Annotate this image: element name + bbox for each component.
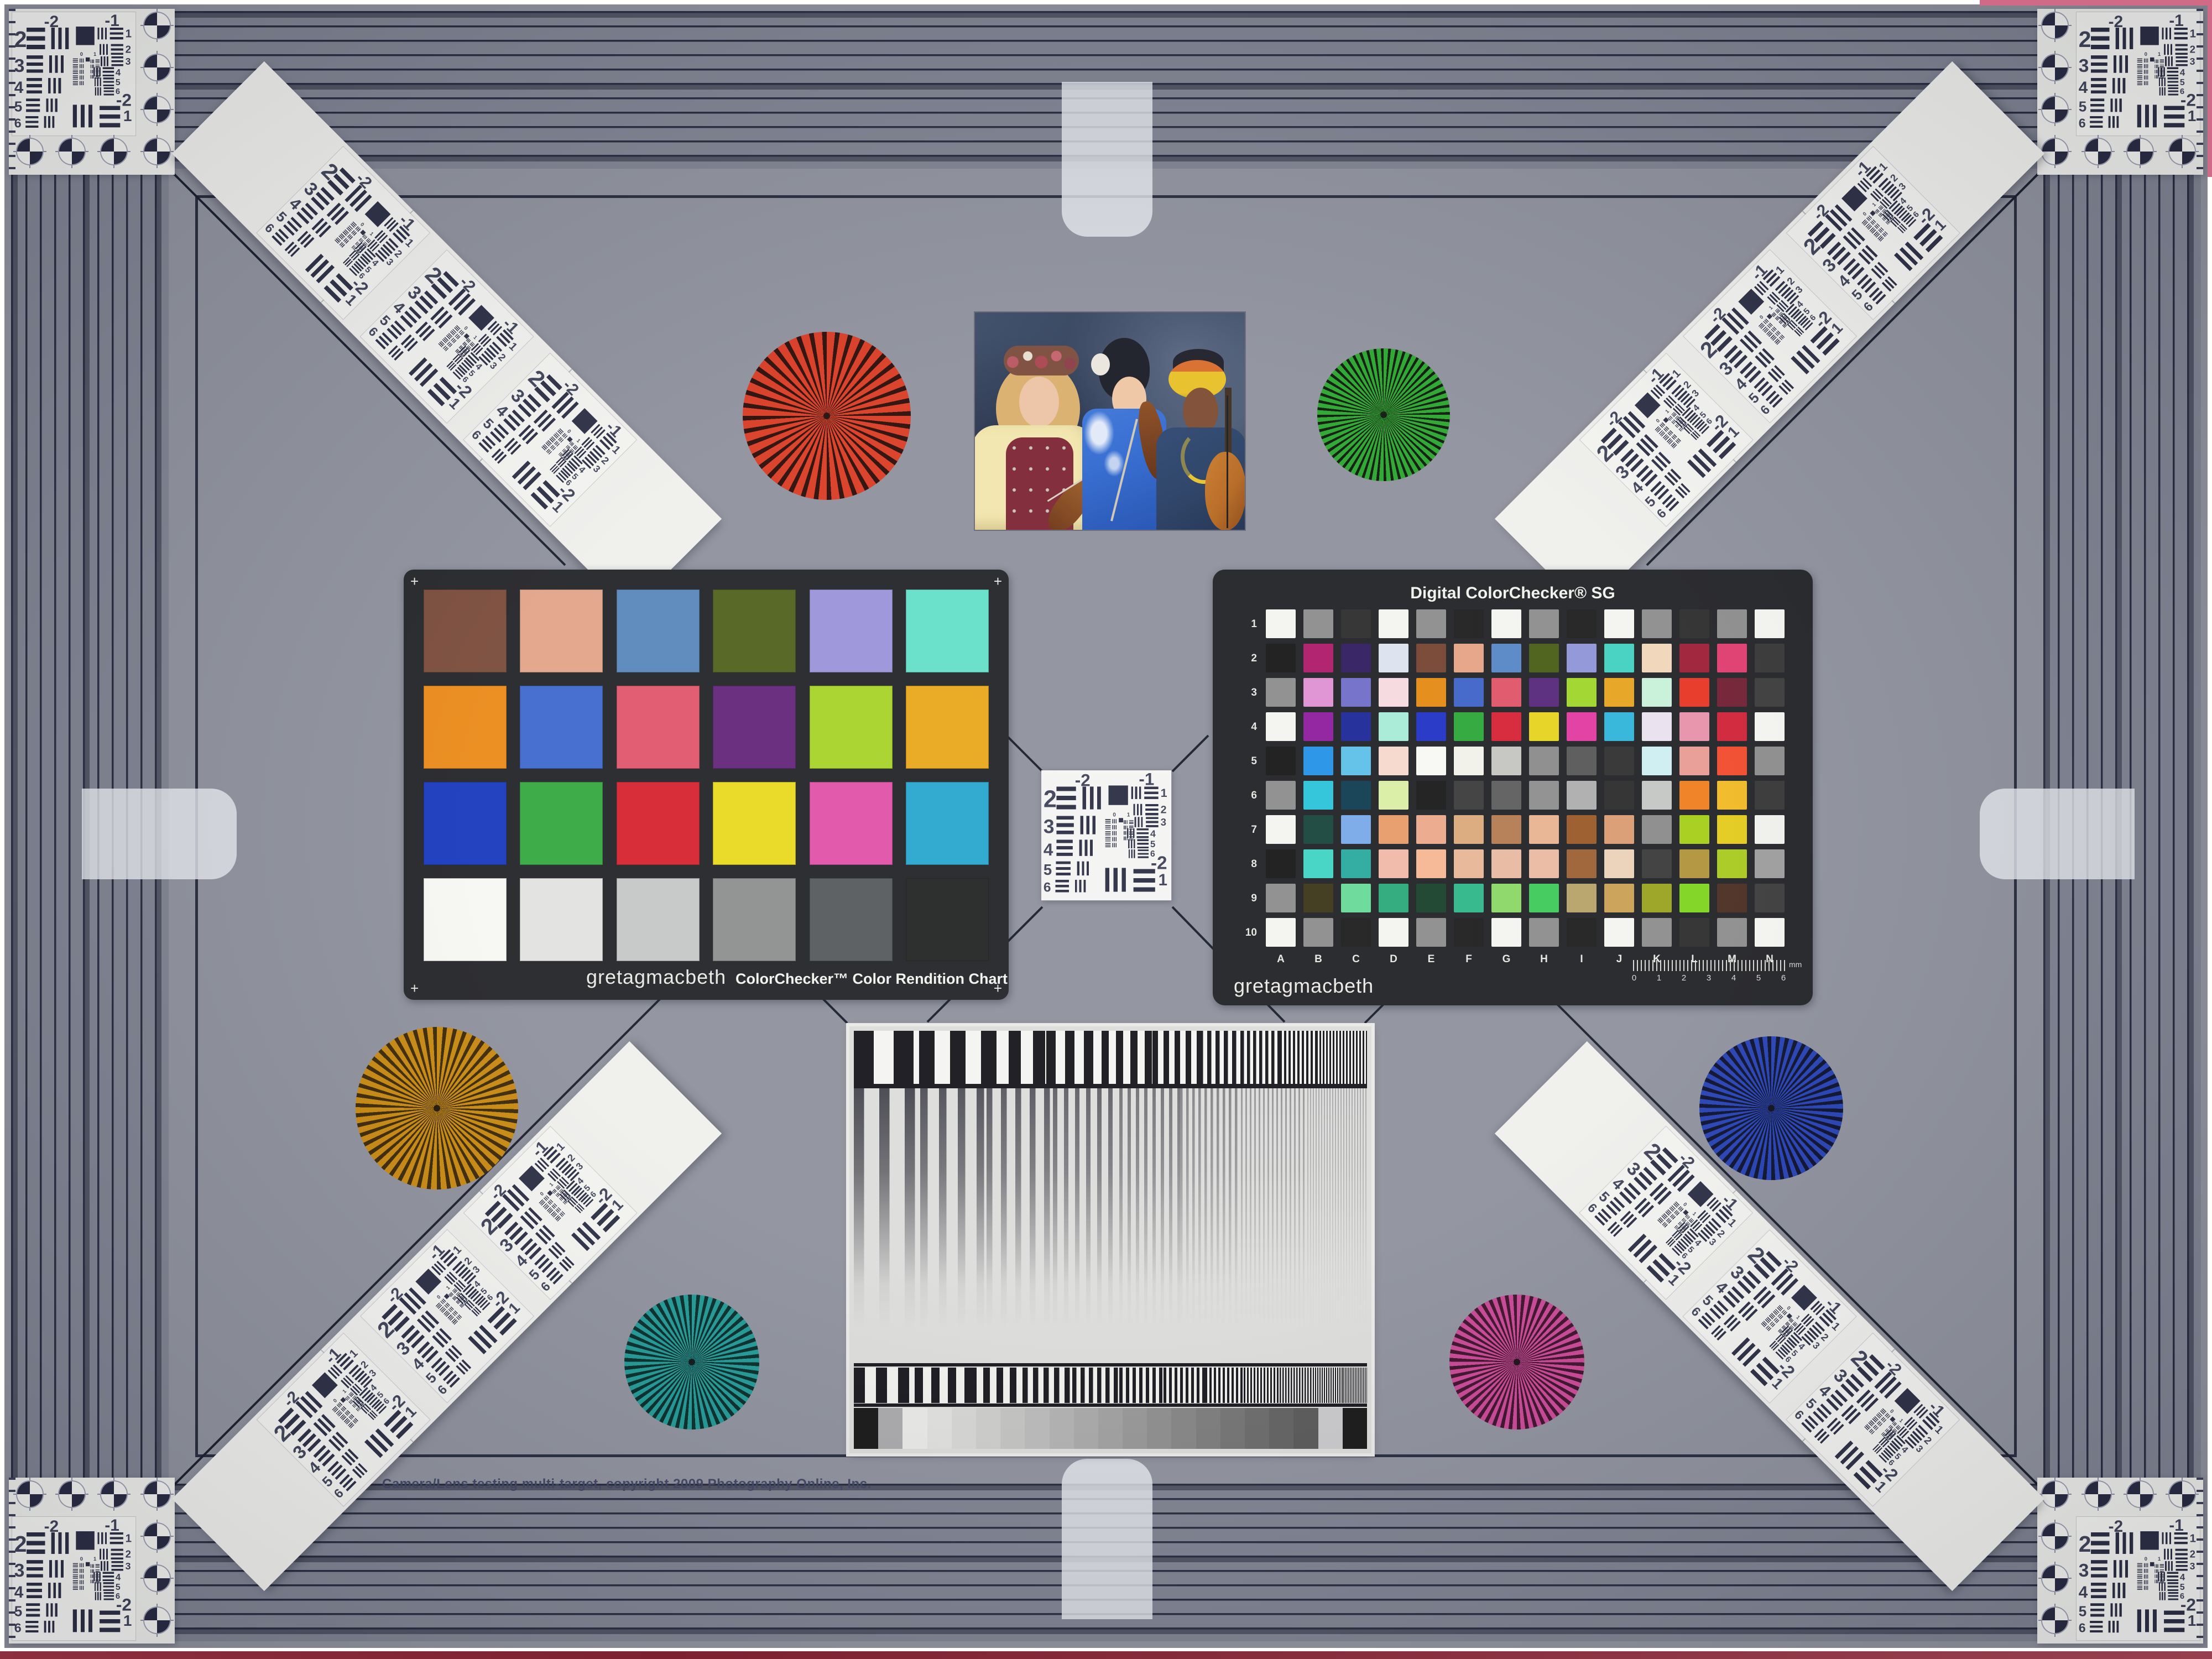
tribar-vertical bbox=[359, 238, 364, 243]
tribar-horizontal bbox=[348, 1391, 354, 1397]
sg-color-patch bbox=[1529, 884, 1559, 912]
usaf-label: 5 bbox=[116, 1583, 121, 1592]
tribar-horizontal bbox=[1662, 494, 1679, 511]
tribar-horizontal bbox=[1594, 1208, 1611, 1225]
wedge-step bbox=[1147, 1408, 1171, 1449]
sg-color-patch bbox=[1341, 747, 1371, 775]
tribar-horizontal bbox=[283, 216, 302, 235]
tribar-horizontal bbox=[454, 325, 461, 331]
tribar-vertical bbox=[2162, 1532, 2171, 1544]
usaf-label: -1 bbox=[105, 1517, 119, 1533]
tribar-vertical bbox=[364, 1428, 393, 1458]
tribar-vertical bbox=[2164, 44, 2172, 55]
color-patch bbox=[810, 589, 893, 672]
wedge-step bbox=[952, 1408, 976, 1449]
tribar-horizontal bbox=[1869, 287, 1886, 304]
tribar-horizontal bbox=[1877, 235, 1884, 242]
sg-color-patch bbox=[1341, 609, 1371, 638]
sg-color-patch bbox=[1491, 849, 1521, 878]
usaf-label: -1 bbox=[105, 12, 119, 29]
tribar-vertical bbox=[1739, 331, 1761, 353]
tribar-vertical bbox=[2144, 59, 2148, 62]
tribar-vertical bbox=[49, 55, 64, 73]
sg-color-patch bbox=[1416, 884, 1446, 912]
sg-row-label: 10 bbox=[1235, 927, 1257, 939]
tribar-horizontal bbox=[27, 28, 45, 49]
tribar-horizontal bbox=[26, 98, 40, 112]
registration-circle bbox=[2042, 139, 2068, 164]
siemens-star-blue bbox=[1699, 1036, 1843, 1180]
tribar-vertical bbox=[2154, 75, 2158, 79]
tribar-vertical bbox=[1791, 345, 1820, 374]
tribar-vertical bbox=[80, 81, 84, 85]
sg-color-patch bbox=[1379, 609, 1408, 638]
micro-square bbox=[2150, 58, 2154, 61]
tribar-vertical bbox=[1856, 1390, 1879, 1412]
sg-color-patch bbox=[1679, 849, 1709, 878]
usaf-label: 1 bbox=[123, 109, 132, 124]
tribar-vertical bbox=[1738, 1301, 1758, 1321]
edge-tab-bottom bbox=[1062, 1459, 1152, 1619]
edge-tab-top bbox=[1062, 82, 1152, 237]
sg-color-patch bbox=[1454, 644, 1484, 672]
sg-color-patch bbox=[1679, 609, 1709, 638]
cello-body bbox=[1205, 452, 1245, 530]
registration-circle bbox=[144, 97, 170, 122]
color-patch bbox=[424, 589, 507, 672]
tribar-horizontal bbox=[2090, 1603, 2104, 1616]
tribar-vertical bbox=[1628, 1233, 1657, 1262]
usaf-label: 1 bbox=[2188, 109, 2197, 124]
tribar-vertical bbox=[345, 185, 372, 212]
checker-segment bbox=[1280, 1031, 1316, 1084]
wedge-step bbox=[1025, 1408, 1049, 1449]
usaf-label: 0 bbox=[540, 1191, 545, 1197]
sg-color-patch bbox=[1379, 747, 1408, 775]
sg-color-patch bbox=[1266, 849, 1296, 878]
tribar-horizontal bbox=[25, 116, 38, 128]
usaf-label: 2 bbox=[2190, 1550, 2195, 1560]
sg-color-patch bbox=[1567, 781, 1597, 810]
color-patch bbox=[713, 782, 796, 865]
usaf-label: -2 bbox=[2180, 91, 2196, 109]
tribar-vertical bbox=[341, 1406, 346, 1412]
tribar-horizontal bbox=[451, 1318, 458, 1325]
sg-column-label: D bbox=[1379, 953, 1408, 966]
sg-color-patch bbox=[1529, 644, 1559, 672]
tribar-vertical bbox=[297, 231, 314, 248]
tribar-vertical bbox=[555, 1207, 561, 1212]
tribar-vertical bbox=[1636, 434, 1658, 456]
sg-color-patch bbox=[1717, 712, 1747, 741]
tribar-horizontal bbox=[110, 1532, 123, 1544]
tribar-vertical bbox=[345, 1410, 350, 1416]
color-patch bbox=[713, 686, 796, 769]
tribar-vertical bbox=[445, 1345, 462, 1362]
tribar-vertical bbox=[2110, 98, 2121, 112]
sg-color-patch bbox=[1379, 644, 1408, 672]
tribar-vertical bbox=[97, 28, 107, 39]
sg-color-patch bbox=[1717, 678, 1747, 707]
sg-title-text: Digital ColorChecker® SG bbox=[1213, 584, 1813, 603]
usaf-label: 0 bbox=[1863, 211, 1868, 217]
tribar-vertical bbox=[1785, 1321, 1790, 1326]
tribar-vertical bbox=[468, 1325, 497, 1354]
sg-color-patch bbox=[1642, 747, 1672, 775]
usaf-label: 1 bbox=[1872, 202, 1877, 207]
registration-circle bbox=[2085, 1481, 2111, 1507]
checker-segment bbox=[970, 1368, 1022, 1403]
tribar-vertical bbox=[295, 1391, 322, 1418]
tribar-vertical bbox=[555, 1192, 560, 1197]
tribar-horizontal bbox=[1146, 817, 1159, 827]
tribar-horizontal bbox=[96, 65, 100, 69]
tribar-vertical bbox=[2144, 64, 2148, 68]
tribar-vertical bbox=[2114, 55, 2128, 73]
wedge-step bbox=[1269, 1408, 1293, 1449]
usaf-resolution-chart: -2-123456123456-2101 bbox=[1041, 770, 1171, 900]
tribar-vertical bbox=[348, 1399, 353, 1404]
siemens-star-green bbox=[1317, 348, 1450, 481]
sg-color-patch bbox=[1755, 609, 1785, 638]
sg-color-patch bbox=[1266, 918, 1296, 947]
tribar-vertical bbox=[2154, 60, 2158, 64]
sg-ruler-number: 3 bbox=[1703, 973, 1714, 983]
checker-segment bbox=[1199, 1031, 1241, 1084]
tribar-vertical bbox=[552, 392, 579, 419]
tribar-vertical bbox=[90, 60, 94, 64]
tribar-horizontal bbox=[96, 1579, 100, 1583]
tribar-horizontal bbox=[2160, 65, 2164, 69]
usaf-label: 1 bbox=[2190, 28, 2196, 39]
tribar-vertical bbox=[48, 1583, 61, 1598]
tribar-vertical bbox=[1674, 483, 1690, 498]
colorchecker-sg-chart: Digital ColorChecker® SG gretagmacbeth m… bbox=[1213, 570, 1813, 1005]
wedge-step bbox=[976, 1408, 1000, 1449]
tribar-horizontal bbox=[387, 320, 405, 339]
usaf-label: 2 bbox=[14, 29, 27, 51]
tribar-vertical bbox=[1618, 411, 1645, 438]
color-patch bbox=[617, 686, 700, 769]
usaf-label: 0 bbox=[80, 53, 83, 58]
sg-column-label: M bbox=[1717, 953, 1747, 966]
sg-color-patch bbox=[1755, 918, 1785, 947]
wedge-step bbox=[1050, 1408, 1074, 1449]
sg-color-patch bbox=[1341, 644, 1371, 672]
tribar-vertical bbox=[1767, 322, 1772, 328]
sg-color-patch bbox=[1679, 712, 1709, 741]
tribar-horizontal bbox=[1129, 820, 1134, 824]
sg-color-patch bbox=[1604, 712, 1634, 741]
sg-ruler-number: 4 bbox=[1728, 973, 1739, 983]
tribar-horizontal bbox=[2090, 98, 2104, 112]
tribar-horizontal bbox=[2174, 28, 2188, 39]
tribar-vertical bbox=[492, 448, 507, 464]
tribar-horizontal bbox=[2091, 1560, 2107, 1578]
tribar-vertical bbox=[347, 234, 353, 239]
checker-segment bbox=[1313, 1368, 1343, 1403]
sg-color-patch bbox=[1491, 815, 1521, 844]
tribar-vertical bbox=[1843, 227, 1865, 249]
tribar-horizontal bbox=[479, 435, 496, 452]
registration-circle bbox=[144, 55, 170, 80]
usaf-label: 4 bbox=[2079, 1584, 2088, 1600]
tribar-vertical bbox=[2144, 1569, 2148, 1573]
usaf-label: 1 bbox=[1691, 1211, 1697, 1217]
divider-line bbox=[854, 1404, 1367, 1407]
usaf-label: 1 bbox=[1127, 812, 1130, 818]
tribar-vertical bbox=[2162, 28, 2171, 39]
tribar-vertical bbox=[1894, 241, 1923, 270]
tribar-vertical bbox=[1124, 826, 1128, 830]
tribar-vertical bbox=[95, 1592, 101, 1600]
registration-circle bbox=[17, 1481, 43, 1507]
sg-color-patch bbox=[1755, 678, 1785, 707]
wedge-step bbox=[902, 1408, 927, 1449]
sg-ruler-number: 5 bbox=[1753, 973, 1764, 983]
usaf-label: 1 bbox=[368, 231, 374, 237]
tribar-horizontal bbox=[103, 1572, 114, 1582]
registration-circle bbox=[2042, 97, 2068, 122]
registration-circle bbox=[2042, 1608, 2068, 1633]
sg-color-patch bbox=[1379, 849, 1408, 878]
tribar-horizontal bbox=[27, 78, 42, 93]
siemens-star-amber bbox=[356, 1027, 518, 1190]
tribar-horizontal bbox=[1709, 1300, 1728, 1319]
tribar-vertical bbox=[2154, 1574, 2158, 1578]
left-musician-flower-crown bbox=[1004, 346, 1079, 375]
tribar-vertical bbox=[80, 64, 84, 68]
tribar-vertical bbox=[80, 70, 84, 74]
tribar-horizontal bbox=[431, 1357, 450, 1376]
tribar-vertical bbox=[547, 1199, 553, 1204]
tribar-vertical bbox=[80, 1563, 84, 1567]
usaf-label: 4 bbox=[1044, 841, 1053, 858]
tribar-vertical bbox=[452, 1296, 457, 1301]
sg-color-patch bbox=[1454, 884, 1484, 912]
tribar-vertical bbox=[571, 1221, 601, 1250]
sg-column-label: C bbox=[1341, 953, 1371, 966]
tribar-vertical bbox=[2116, 28, 2133, 49]
sg-column-label: J bbox=[1604, 953, 1634, 966]
sg-color-patch bbox=[1379, 884, 1408, 912]
tribar-horizontal bbox=[2167, 1572, 2178, 1582]
sg-color-patch bbox=[1604, 884, 1634, 912]
tribar-horizontal bbox=[96, 75, 100, 79]
tribar-horizontal bbox=[1056, 862, 1070, 875]
tribar-horizontal bbox=[1765, 390, 1782, 408]
usaf-label: 2 bbox=[126, 45, 131, 55]
sg-color-patch bbox=[1529, 781, 1559, 810]
registration-circle bbox=[144, 1524, 170, 1549]
registration-circle bbox=[17, 139, 43, 164]
sg-color-patch bbox=[1717, 849, 1747, 878]
tribar-horizontal bbox=[327, 1460, 346, 1479]
tribar-vertical bbox=[512, 461, 541, 490]
tribar-horizontal bbox=[2160, 1579, 2164, 1583]
tribar-horizontal bbox=[351, 221, 357, 228]
tribar-horizontal bbox=[73, 1569, 78, 1573]
registration-circle bbox=[144, 1481, 170, 1507]
scan-edge-top-right bbox=[1980, 0, 2212, 6]
usaf-label: 6 bbox=[1655, 507, 1668, 520]
tribar-vertical bbox=[285, 241, 300, 257]
tribar-horizontal bbox=[2168, 1582, 2179, 1591]
tribar-horizontal bbox=[26, 1603, 40, 1616]
tribar-vertical bbox=[447, 341, 452, 347]
copyright-text: Camera/Lens testing multi-target, copyri… bbox=[382, 1477, 872, 1492]
tribar-vertical bbox=[2144, 1586, 2148, 1590]
registration-circle bbox=[2169, 1481, 2195, 1507]
color-patch bbox=[617, 589, 700, 672]
usaf-label: 4 bbox=[116, 67, 121, 77]
usaf-label: 0 bbox=[1889, 1409, 1895, 1415]
color-patch bbox=[520, 878, 603, 961]
tribar-vertical bbox=[1674, 1210, 1679, 1215]
sg-row-label: 8 bbox=[1235, 858, 1257, 870]
tribar-vertical bbox=[1124, 831, 1128, 835]
usaf-label: 2 bbox=[2079, 29, 2091, 51]
tribar-horizontal bbox=[73, 64, 78, 68]
checker-segment bbox=[1316, 1031, 1367, 1084]
tribar-vertical bbox=[459, 1303, 464, 1308]
usaf-label: 0 bbox=[1655, 418, 1661, 424]
tribar-vertical bbox=[1128, 839, 1135, 848]
tribar-vertical bbox=[1711, 1325, 1726, 1340]
divider-line bbox=[854, 1084, 1367, 1088]
sg-color-patch bbox=[1642, 918, 1672, 947]
tribar-vertical bbox=[2144, 1574, 2148, 1578]
usaf-label: 0 bbox=[80, 1557, 83, 1562]
tribar-horizontal bbox=[111, 1549, 123, 1560]
tribar-vertical bbox=[90, 1574, 94, 1578]
sg-color-patch bbox=[1416, 918, 1446, 947]
color-patch bbox=[713, 589, 796, 672]
sg-color-patch bbox=[1567, 884, 1597, 912]
usaf-label: 2 bbox=[14, 1533, 27, 1556]
micro-square bbox=[1119, 818, 1123, 822]
classic-title-text: ColorChecker™ Color Rendition Chart bbox=[735, 971, 1008, 988]
tribar-vertical bbox=[1827, 1417, 1844, 1434]
siemens-star-magenta bbox=[1449, 1295, 1584, 1430]
tribar-horizontal bbox=[1857, 274, 1876, 293]
wedge-step bbox=[927, 1408, 952, 1449]
tribar-horizontal bbox=[2137, 64, 2142, 68]
sg-color-patch bbox=[1341, 849, 1371, 878]
sg-color-patch bbox=[1266, 644, 1296, 672]
usaf-label: 5 bbox=[1150, 839, 1155, 849]
tribar-vertical bbox=[546, 448, 552, 454]
sg-color-patch bbox=[1416, 747, 1446, 775]
wedge-step bbox=[1171, 1408, 1196, 1449]
registration-circle bbox=[2085, 139, 2111, 164]
tribar-horizontal bbox=[1775, 308, 1780, 314]
tribar-vertical bbox=[2137, 1609, 2157, 1632]
checker-segment bbox=[984, 1031, 1046, 1084]
tribar-horizontal bbox=[1802, 1415, 1819, 1432]
sg-color-patch bbox=[1303, 815, 1333, 844]
tribar-vertical bbox=[44, 1621, 55, 1632]
tribar-vertical bbox=[519, 425, 539, 445]
tribar-horizontal bbox=[2091, 28, 2109, 49]
sg-color-patch bbox=[1303, 884, 1333, 912]
tribar-vertical bbox=[2112, 78, 2125, 93]
tribar-vertical bbox=[452, 1311, 457, 1316]
tribar-vertical bbox=[1671, 434, 1677, 440]
siemens-star-red bbox=[743, 332, 911, 500]
wedge-step bbox=[1123, 1408, 1147, 1449]
tribar-vertical bbox=[1731, 1337, 1761, 1366]
usaf-chart-wrap: -2-123456123456-2101 bbox=[1041, 770, 1171, 900]
tribar-horizontal bbox=[111, 56, 123, 66]
usaf-resolution-chart: -2-123456123456-2101 bbox=[2077, 12, 2200, 135]
tribar-horizontal bbox=[27, 1583, 42, 1598]
tribar-vertical bbox=[1724, 1314, 1741, 1331]
tribar-horizontal bbox=[73, 70, 78, 74]
registration-circle bbox=[2042, 13, 2068, 38]
usaf-label: 0 bbox=[332, 1398, 338, 1404]
sg-color-patch bbox=[1642, 849, 1672, 878]
tribar-vertical bbox=[559, 437, 564, 442]
tribar-horizontal bbox=[73, 81, 78, 85]
tribar-vertical bbox=[444, 1302, 450, 1308]
tribar-horizontal bbox=[2137, 1586, 2142, 1590]
tribar-vertical bbox=[49, 1560, 64, 1578]
checker-segment bbox=[1152, 1031, 1199, 1084]
tribar-vertical bbox=[90, 75, 94, 79]
sg-color-patch bbox=[1567, 918, 1597, 947]
tribar-vertical bbox=[2154, 65, 2158, 69]
color-patch bbox=[713, 878, 796, 961]
registration-circle bbox=[144, 13, 170, 38]
sg-color-patch bbox=[1454, 712, 1484, 741]
tribar-vertical bbox=[1663, 426, 1669, 432]
tribar-vertical bbox=[2114, 1560, 2128, 1578]
sg-color-patch bbox=[1717, 884, 1747, 912]
sg-color-patch bbox=[1717, 644, 1747, 672]
sg-row-label: 5 bbox=[1235, 755, 1257, 768]
tribar-horizontal bbox=[2160, 75, 2164, 79]
tribar-vertical bbox=[1620, 1211, 1637, 1228]
tribar-vertical bbox=[1871, 262, 1888, 279]
tribar-vertical bbox=[1755, 348, 1775, 368]
tribar-vertical bbox=[1841, 1405, 1861, 1425]
tribar-vertical bbox=[1873, 1425, 1879, 1430]
usaf-label: 1 bbox=[1665, 409, 1670, 415]
middle-musician-flower bbox=[1091, 353, 1110, 375]
tribar-vertical bbox=[1870, 219, 1876, 225]
tribar-vertical bbox=[1882, 231, 1887, 237]
tribar-horizontal bbox=[1671, 411, 1677, 417]
sg-color-patch bbox=[1266, 747, 1296, 775]
sg-color-patch bbox=[1567, 678, 1597, 707]
tribar-vertical bbox=[559, 1256, 575, 1271]
resolution-sweep-chart bbox=[849, 1026, 1371, 1453]
tribar-vertical bbox=[90, 70, 94, 74]
tribar-horizontal bbox=[1145, 804, 1159, 816]
tribar-vertical bbox=[2116, 1532, 2133, 1554]
sg-color-patch bbox=[1416, 849, 1446, 878]
usaf-label: 6 bbox=[539, 1280, 552, 1293]
big-black-square bbox=[76, 27, 94, 45]
usaf-label: 0 bbox=[1786, 1305, 1791, 1311]
sg-color-patch bbox=[1491, 712, 1521, 741]
wedge-step bbox=[1343, 1408, 1367, 1449]
tribar-vertical bbox=[2144, 75, 2148, 79]
edge-ruler-ticks bbox=[2197, 9, 2203, 175]
tribar-horizontal bbox=[504, 410, 525, 431]
sg-color-patch bbox=[1679, 815, 1709, 844]
